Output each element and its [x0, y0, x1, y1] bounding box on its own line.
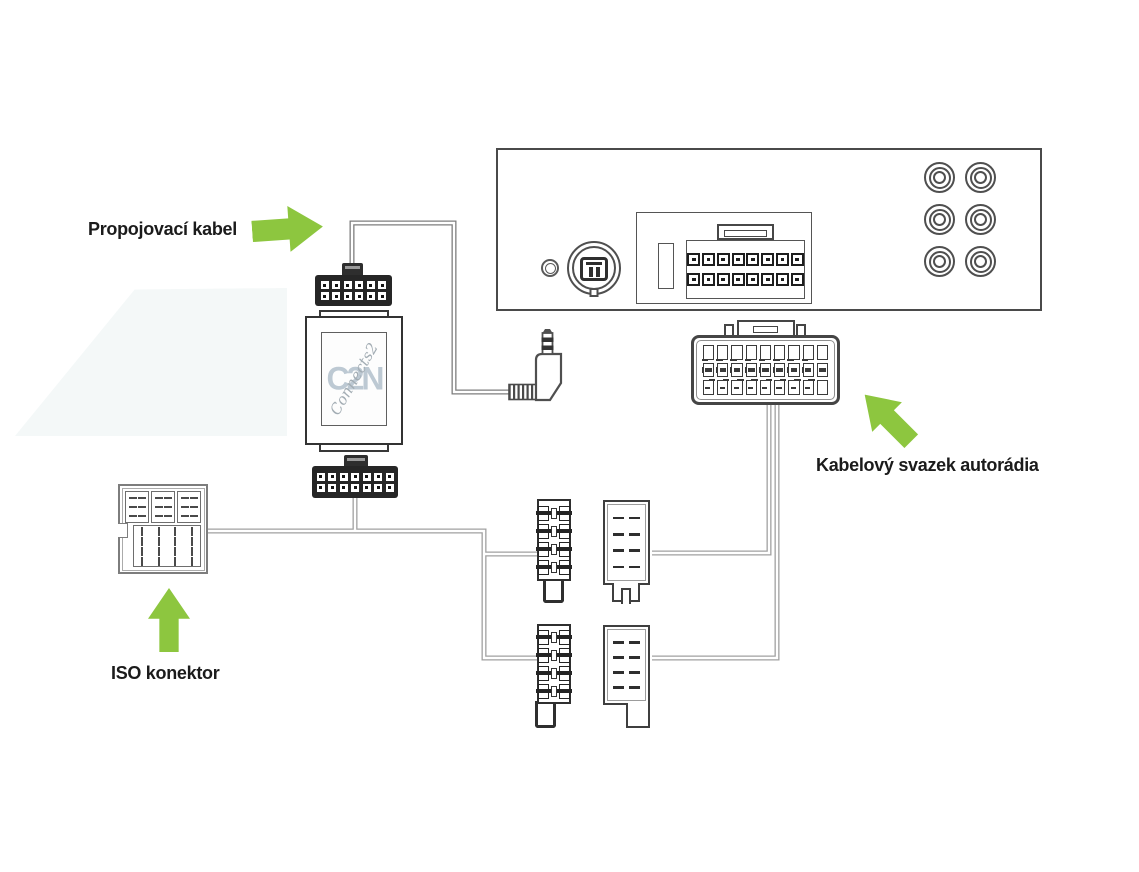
rca-ring: [929, 167, 951, 189]
connector-pin: [717, 273, 730, 286]
socket-slot: [613, 671, 624, 674]
socket-slot: [613, 686, 624, 689]
wire-harness-a: [652, 404, 769, 553]
iso-speaker-contact: [191, 537, 193, 546]
harness-terminal: [788, 345, 799, 360]
label-connector-cable: Propojovací kabel: [88, 219, 237, 240]
socket-slot: [629, 686, 640, 689]
male-terminal: [559, 630, 570, 645]
iso-connector-block: [118, 484, 208, 574]
socket-slot: [613, 517, 624, 520]
female-socket-1-notch: [621, 588, 631, 604]
male-plug-2-terminals: [539, 626, 569, 702]
radio-main-pin-grid: [687, 241, 804, 298]
harness-terminal: [774, 380, 785, 395]
connector-pin: [363, 484, 371, 492]
harness-terminal: [703, 345, 714, 360]
iso-contact: [129, 506, 137, 508]
rca-jack: [924, 162, 955, 193]
harness-terminal: [788, 380, 799, 395]
connector-pin: [321, 281, 329, 289]
harness-terminal: [731, 380, 742, 395]
iso-speaker-contact: [141, 547, 143, 556]
male-terminal: [559, 560, 570, 575]
socket-slot: [613, 656, 624, 659]
connector-pin: [378, 281, 386, 289]
connector-pin: [355, 292, 363, 300]
iso-keying-notch: [118, 523, 128, 538]
connector-pin: [340, 473, 348, 481]
male-terminal: [538, 666, 549, 681]
connector-pin: [344, 281, 352, 289]
rca-ring: [970, 209, 992, 231]
rca-ring: [933, 255, 946, 268]
iso-speaker-contact: [141, 557, 143, 566]
harness-terminal: [746, 380, 757, 395]
female-socket-1-slots: [611, 510, 642, 575]
rca-jack: [924, 204, 955, 235]
harness-terminal: [703, 363, 714, 378]
wire-iso-main: [206, 531, 540, 658]
connector-pin: [374, 473, 382, 481]
connector-pin: [321, 292, 329, 300]
harness-terminal: [717, 345, 728, 360]
socket-slot: [629, 517, 640, 520]
female-socket-2-leg: [626, 703, 650, 728]
harness-terminal: [746, 363, 757, 378]
iso-contact: [164, 506, 172, 508]
iso-power-block: [125, 491, 149, 523]
male-plug-1-terminals: [539, 501, 569, 579]
iso-speaker-contact: [174, 547, 176, 556]
iso-speaker-contact: [191, 527, 193, 536]
socket-slot: [613, 533, 624, 536]
harness-terminal: [817, 363, 828, 378]
jack-body: [536, 354, 561, 400]
connector-pin: [791, 273, 804, 286]
connector-pin: [328, 473, 336, 481]
iso-speaker-contact: [158, 537, 160, 546]
iso-speaker-contact: [141, 537, 143, 546]
iso-speaker-contact: [141, 527, 143, 536]
rca-ring: [929, 209, 951, 231]
iso-speaker-section: [133, 525, 201, 567]
male-terminal: [559, 666, 570, 681]
connector-pin: [386, 473, 394, 481]
rca-ring: [974, 213, 987, 226]
jack-strain-relief: [509, 385, 537, 400]
connector-pin: [328, 484, 336, 492]
harness-terminal: [703, 380, 714, 395]
connector-pin: [761, 253, 774, 266]
radio-side-slot: [658, 243, 674, 289]
harness-terminal: [817, 345, 828, 360]
iso-power-block: [151, 491, 175, 523]
iso-contact: [129, 497, 137, 499]
iso-contact: [190, 515, 198, 517]
socket-slot: [629, 671, 640, 674]
connector-pin: [332, 281, 340, 289]
rca-ring: [970, 251, 992, 273]
iso-speaker-contact: [191, 557, 193, 566]
harness-terminal: [774, 363, 785, 378]
harness-terminal-grid: [703, 345, 828, 395]
male-terminal: [559, 684, 570, 699]
connector-pin: [687, 273, 700, 286]
male-terminal: [538, 524, 549, 539]
rca-ring: [933, 171, 946, 184]
socket-slot: [629, 566, 640, 569]
iso-speaker-contact: [158, 557, 160, 566]
connector-pin: [363, 473, 371, 481]
harness-terminal: [760, 345, 771, 360]
iso-contact: [181, 497, 189, 499]
iso-contact: [181, 515, 189, 517]
harness-terminal: [803, 363, 814, 378]
male-terminal: [538, 648, 549, 663]
connector-pin: [340, 484, 348, 492]
jack-tip: [543, 329, 553, 333]
radio-harness-plug: [691, 335, 840, 405]
harness-terminal: [731, 345, 742, 360]
iso-speaker-contact: [174, 527, 176, 536]
male-iso-plug-2: [537, 624, 571, 704]
radio-main-connector: [686, 240, 805, 299]
harness-terminal: [803, 345, 814, 360]
wire-layer: [0, 0, 1139, 872]
iso-contact: [190, 506, 198, 508]
rca-ring: [929, 251, 951, 273]
male-terminal: [538, 542, 549, 557]
iso-contact: [155, 497, 163, 499]
harness-terminal: [803, 380, 814, 395]
label-radio-harness: Kabelový svazek autorádia: [816, 455, 1039, 476]
connector-pin: [702, 273, 715, 286]
iso-contact: [164, 497, 172, 499]
male-terminal: [538, 560, 549, 575]
connector-pin: [746, 273, 759, 286]
iso-contact: [190, 497, 198, 499]
rca-jack: [965, 246, 996, 277]
connector-pin: [367, 281, 375, 289]
radio-connector-latch: [717, 224, 774, 240]
harness-terminal: [746, 345, 757, 360]
harness-terminal: [760, 380, 771, 395]
male-terminal: [559, 524, 570, 539]
connector-pin: [687, 253, 700, 266]
rca-ring: [974, 171, 987, 184]
connector-pin: [355, 281, 363, 289]
male-iso-plug-1: [537, 499, 571, 581]
iso-speaker-contact: [158, 547, 160, 556]
iso-power-section: [125, 491, 201, 523]
connector-pin: [791, 253, 804, 266]
male-terminal: [538, 506, 549, 521]
connector-pin: [351, 473, 359, 481]
female-iso-socket-2: [603, 625, 650, 705]
iso-speaker-contact: [191, 547, 193, 556]
iso-power-block: [177, 491, 201, 523]
adapter-bottom-connector: [312, 466, 398, 498]
iso-contact: [181, 506, 189, 508]
male-plug-2-latch: [535, 701, 556, 728]
connector-pin: [776, 253, 789, 266]
iso-contact: [155, 506, 163, 508]
male-terminal: [538, 630, 549, 645]
connector-pin: [761, 273, 774, 286]
connector-pin: [367, 292, 375, 300]
socket-slot: [629, 549, 640, 552]
connector-pin: [317, 484, 325, 492]
iso-speaker-contact: [174, 557, 176, 566]
car-audio-adapter-wiring-diagram: C2N Connects2 Propojova: [0, 0, 1139, 872]
adapter-interface-box: C2N Connects2: [305, 316, 403, 445]
rca-jack: [965, 204, 996, 235]
connector-pin: [776, 273, 789, 286]
connector-pin: [374, 484, 382, 492]
adapter-brand-label: C2N Connects2: [321, 332, 387, 426]
socket-slot: [613, 549, 624, 552]
label-iso-connector: ISO konektor: [111, 663, 219, 684]
female-iso-socket-1: [603, 500, 650, 585]
radio-rear-panel: [496, 148, 1042, 311]
connector-pin: [332, 292, 340, 300]
female-socket-2-slots: [611, 635, 642, 695]
wire-harness-b: [652, 404, 777, 658]
rca-ring: [974, 255, 987, 268]
connector-pin: [746, 253, 759, 266]
harness-terminal: [788, 363, 799, 378]
rca-ring: [970, 167, 992, 189]
connector-pin: [386, 484, 394, 492]
jack-plug-35mm: [509, 329, 561, 400]
antenna-socket-icon: [567, 241, 621, 295]
rca-jack: [965, 162, 996, 193]
iso-speaker-contact: [174, 537, 176, 546]
antenna-remote-port-icon: [541, 259, 559, 277]
male-plug-1-latch: [543, 578, 564, 603]
socket-slot: [629, 533, 640, 536]
harness-terminal: [717, 380, 728, 395]
iso-speaker-contact: [158, 527, 160, 536]
socket-slot: [613, 566, 624, 569]
connector-pin: [732, 273, 745, 286]
adapter-bottom-pin-grid: [312, 466, 398, 498]
antenna-socket-notch: [590, 288, 599, 297]
male-terminal: [559, 648, 570, 663]
iso-contact: [164, 515, 172, 517]
harness-terminal: [774, 345, 785, 360]
adapter-top-connector: [315, 275, 392, 306]
connector-pin: [344, 292, 352, 300]
rca-ring: [933, 213, 946, 226]
connector-pin: [702, 253, 715, 266]
antenna-socket-plug: [580, 257, 608, 281]
iso-contact: [129, 515, 137, 517]
iso-contact: [138, 497, 146, 499]
socket-slot: [629, 641, 640, 644]
harness-terminal: [717, 363, 728, 378]
socket-slot: [613, 641, 624, 644]
harness-terminal: [817, 380, 828, 395]
socket-slot: [629, 656, 640, 659]
jack-sleeve: [543, 333, 553, 354]
connector-pin: [732, 253, 745, 266]
rca-jack: [924, 246, 955, 277]
male-terminal: [538, 684, 549, 699]
rca-output-jacks: [924, 162, 996, 277]
connector-pin: [717, 253, 730, 266]
connector-pin: [351, 484, 359, 492]
radio-connector-recess: [636, 212, 812, 304]
connector-pin: [317, 473, 325, 481]
male-terminal: [559, 542, 570, 557]
harness-terminal: [731, 363, 742, 378]
connector-pin: [378, 292, 386, 300]
iso-contact: [138, 515, 146, 517]
adapter-top-pin-grid: [315, 275, 392, 306]
iso-contact: [155, 515, 163, 517]
male-terminal: [559, 506, 570, 521]
harness-terminal: [760, 363, 771, 378]
iso-contact: [138, 506, 146, 508]
